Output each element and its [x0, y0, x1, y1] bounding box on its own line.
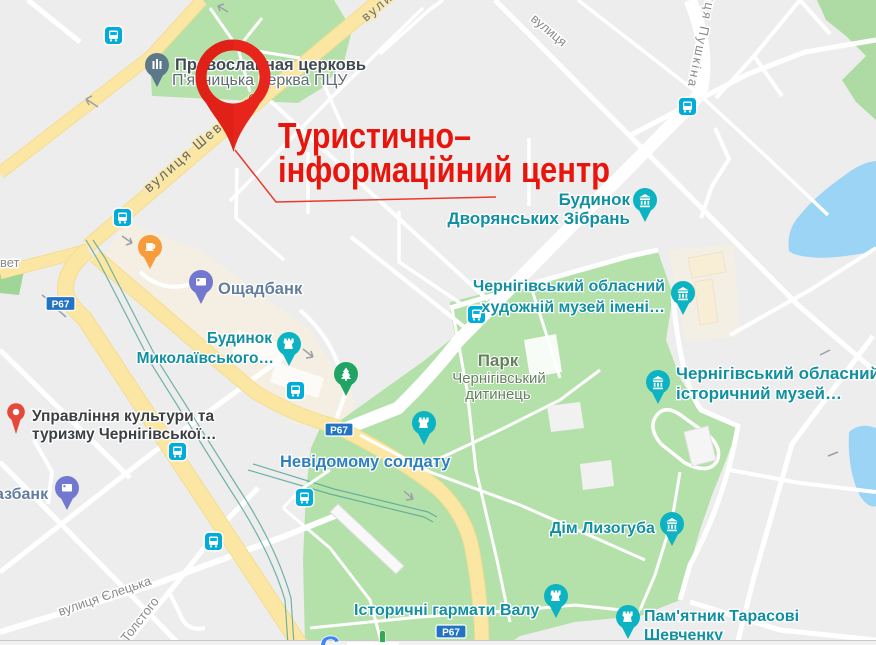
svg-text:Чернігівський обласний: Чернігівський обласний: [473, 278, 665, 295]
svg-text:Будинок: Будинок: [559, 190, 631, 209]
svg-text:вет: вет: [0, 255, 20, 270]
svg-text:художній музей імені…: художній музей імені…: [481, 299, 665, 316]
svg-text:Управління культури та: Управління культури та: [32, 408, 215, 425]
svg-text:азбанк: азбанк: [0, 486, 49, 503]
svg-text:Історичні гармати Валу: Історичні гармати Валу: [354, 602, 539, 619]
svg-text:Пам'ятник Тарасові: Пам'ятник Тарасові: [644, 608, 799, 625]
svg-text:Дворянських Зібрань: Дворянських Зібрань: [447, 209, 630, 228]
svg-text:інформаційний центр: інформаційний центр: [278, 149, 610, 190]
svg-text:туризму Чернігівської…: туризму Чернігівської…: [32, 426, 216, 443]
svg-text:Ощадбанк: Ощадбанк: [218, 280, 303, 298]
svg-text:Чернігівський обласний: Чернігівський обласний: [676, 364, 876, 383]
svg-text:Будинок: Будинок: [207, 330, 272, 347]
svg-text:G: G: [320, 631, 341, 645]
svg-text:Парк: Парк: [478, 351, 519, 370]
svg-text:P67: P67: [442, 628, 460, 639]
svg-text:Миколаївського…: Миколаївського…: [137, 350, 274, 367]
svg-text:P67: P67: [52, 300, 70, 311]
svg-text:P67: P67: [330, 426, 348, 437]
svg-text:дитинець: дитинець: [465, 386, 531, 403]
svg-text:Невідомому солдату: Невідомому солдату: [280, 453, 451, 471]
svg-text:Дім Лизогуба: Дім Лизогуба: [550, 520, 655, 537]
svg-text:історичний музей…: історичний музей…: [676, 384, 842, 403]
svg-text:Чернігівський: Чернігівський: [452, 370, 546, 387]
